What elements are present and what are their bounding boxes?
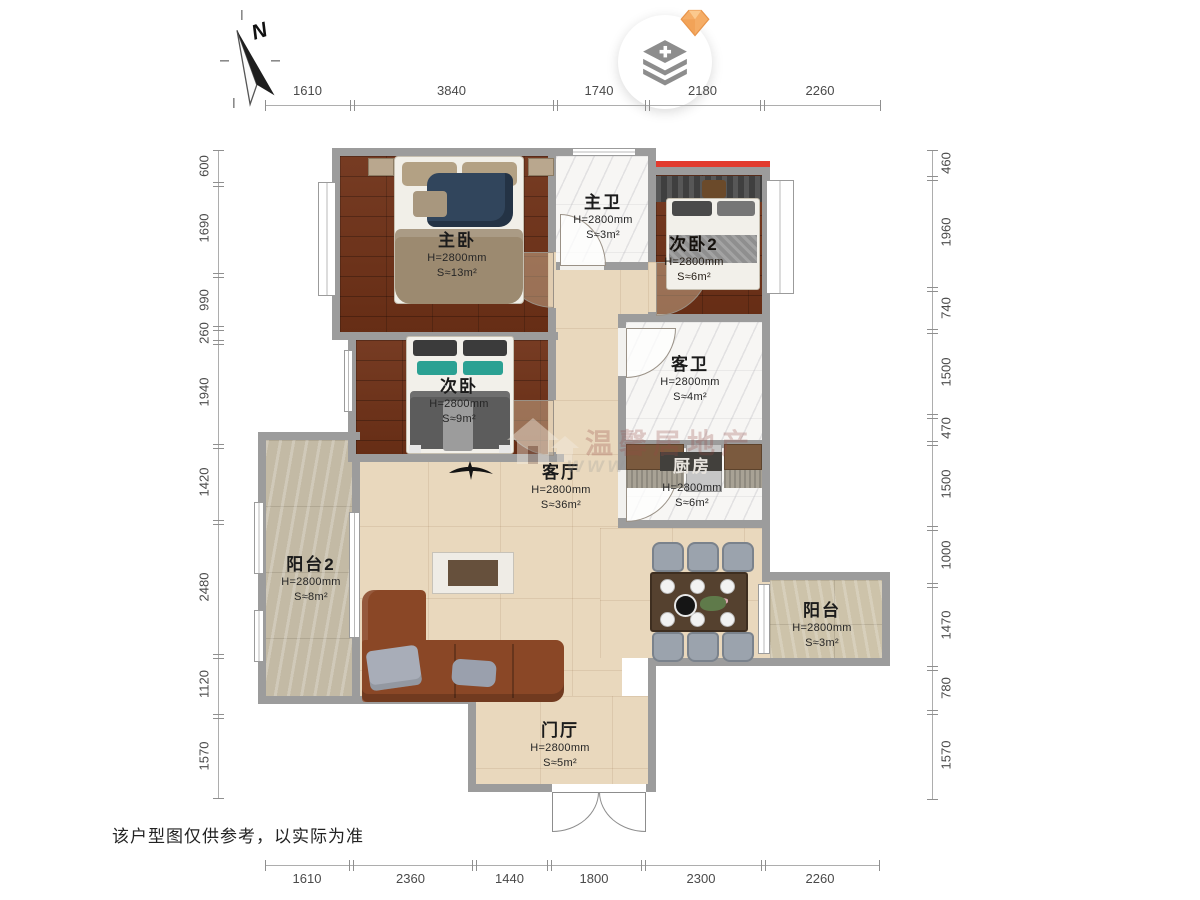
- compass-needle-icon: [220, 8, 280, 112]
- room-area: S≈5m²: [530, 756, 590, 771]
- dim-label: 2260: [806, 871, 835, 886]
- dim-label: 1740: [585, 83, 614, 98]
- room-height: H=2800mm: [281, 575, 341, 590]
- wall-segment: [468, 696, 476, 792]
- wall-segment: [762, 440, 770, 528]
- dim-label: 1960: [939, 217, 954, 246]
- dim-tick: [472, 860, 473, 871]
- dim-line: [265, 865, 879, 866]
- bay-window: [766, 180, 794, 294]
- dim-tick: [879, 860, 880, 871]
- dim-label: 1690: [197, 213, 212, 242]
- room-area: S≈3m²: [573, 228, 633, 243]
- dim-tick: [927, 583, 938, 584]
- room-label-balcony: 阳台 H=2800mm S≈3m²: [792, 596, 852, 650]
- dim-label: 740: [939, 297, 954, 319]
- dim-tick: [927, 666, 938, 667]
- door-opening: [648, 262, 656, 312]
- room-area: S≈13m²: [427, 266, 487, 281]
- room-area: S≈6m²: [664, 270, 724, 285]
- dining-table: [650, 572, 748, 632]
- wall-segment: [762, 314, 770, 448]
- dim-line: [265, 105, 880, 106]
- entry-threshold: [552, 784, 646, 792]
- room-name: 阳台: [792, 596, 852, 621]
- dim-tick: [927, 587, 938, 588]
- dim-tick: [927, 180, 938, 181]
- wall-segment: [258, 696, 360, 704]
- dining-chair: [687, 542, 719, 572]
- dim-tick: [353, 860, 354, 871]
- dim-tick: [927, 414, 938, 415]
- pillow: [413, 340, 457, 356]
- room-area: S≈3m²: [792, 636, 852, 651]
- dim-tick: [349, 860, 350, 871]
- balcony-door-window: [349, 512, 360, 638]
- window: [254, 610, 264, 662]
- dim-tick: [927, 445, 938, 446]
- coffee-table-top: [448, 560, 498, 586]
- room-label-master-bedroom: 主卧 H=2800mm S≈13m²: [427, 226, 487, 280]
- dim-label: 1440: [495, 871, 524, 886]
- dim-tick: [476, 860, 477, 871]
- dim-tick: [645, 100, 646, 111]
- window: [344, 350, 353, 412]
- bay-window: [318, 182, 336, 296]
- wall-segment: [548, 148, 556, 340]
- entry-door-right-leaf: [599, 792, 646, 832]
- nightstand: [368, 158, 394, 176]
- dim-label: 3840: [437, 83, 466, 98]
- sofa-pillow: [451, 658, 497, 687]
- room-area: S≈4m²: [660, 390, 720, 405]
- dim-tick: [354, 100, 355, 111]
- plate: [720, 612, 735, 627]
- dim-label: 1120: [197, 670, 212, 698]
- room-height: H=2800mm: [662, 481, 722, 496]
- floorplan-canvas: N: [0, 0, 1200, 900]
- dim-tick: [213, 654, 224, 655]
- room-name: 客卫: [660, 350, 720, 375]
- dining-chair: [722, 542, 754, 572]
- clothes-item: [702, 180, 726, 198]
- dim-tick: [927, 333, 938, 334]
- dim-label: 2360: [396, 871, 425, 886]
- room-name: 门厅: [530, 716, 590, 741]
- room-name: 次卧: [429, 372, 489, 397]
- coffee-table: [432, 552, 514, 594]
- flower-decor: [700, 596, 726, 611]
- ceiling-fan-icon: [448, 458, 494, 486]
- dim-tick: [765, 860, 766, 871]
- dim-tick: [927, 799, 938, 800]
- kitchen-counter: [724, 444, 762, 470]
- dim-label: 470: [939, 417, 954, 439]
- dim-tick: [927, 150, 938, 151]
- room-label-bedroom: 次卧 H=2800mm S≈9m²: [429, 372, 489, 426]
- dim-tick: [927, 714, 938, 715]
- balcony-door-window: [758, 584, 770, 654]
- dim-tick: [350, 100, 351, 111]
- room-label-bedroom2: 次卧2 H=2800mm S≈6m²: [664, 230, 724, 284]
- dim-label: 2480: [197, 573, 212, 602]
- center-bowl: [674, 594, 697, 617]
- pillow: [413, 191, 447, 217]
- dim-tick: [927, 526, 938, 527]
- room-name: 次卧2: [664, 230, 724, 255]
- dim-tick: [764, 100, 765, 111]
- dim-label: 990: [197, 289, 212, 311]
- dim-tick: [213, 344, 224, 345]
- pillow: [463, 340, 507, 356]
- pillow: [672, 201, 712, 216]
- disclaimer: 该户型图仅供参考，以实际为准: [112, 822, 364, 847]
- room-area: S≈9m²: [429, 412, 489, 427]
- dim-tick: [551, 860, 552, 871]
- plate: [660, 579, 675, 594]
- dim-tick: [641, 860, 642, 871]
- room-height: H=2800mm: [530, 741, 590, 756]
- dim-tick: [213, 150, 224, 151]
- dim-line: [932, 150, 933, 799]
- wall-segment: [882, 572, 890, 666]
- gem-icon: [680, 9, 710, 37]
- dining-chair: [652, 542, 684, 572]
- plate: [720, 579, 735, 594]
- room-label-foyer: 门厅 H=2800mm S≈5m²: [530, 716, 590, 770]
- dim-label: 1800: [580, 871, 609, 886]
- room-label-kitchen: 厨房 H=2800mm S≈6m²: [662, 452, 722, 510]
- pillow: [717, 201, 755, 216]
- dim-label: 1500: [939, 469, 954, 498]
- dim-label: 260: [197, 322, 212, 344]
- room-height: H=2800mm: [792, 621, 852, 636]
- dim-tick: [213, 330, 224, 331]
- entry-door-left-leaf: [552, 792, 599, 832]
- room-label-guest-bath: 客卫 H=2800mm S≈4m²: [660, 350, 720, 404]
- room-height: H=2800mm: [660, 375, 720, 390]
- dim-tick: [557, 100, 558, 111]
- nightstand: [528, 158, 554, 176]
- dim-tick: [927, 287, 938, 288]
- dim-tick: [927, 441, 938, 442]
- dining-chair: [687, 632, 719, 662]
- dim-tick: [927, 291, 938, 292]
- compass: N: [220, 6, 290, 114]
- dim-tick: [213, 186, 224, 187]
- dim-label: 2300: [687, 871, 716, 886]
- dim-tick: [553, 100, 554, 111]
- dim-tick: [213, 273, 224, 274]
- dim-tick: [927, 329, 938, 330]
- dim-tick: [880, 100, 881, 111]
- room-label-master-bath: 主卫 H=2800mm S≈3m²: [573, 188, 633, 242]
- wall-segment: [648, 658, 656, 792]
- dim-tick: [927, 530, 938, 531]
- room-name: 厨房: [662, 452, 722, 477]
- dim-label: 2260: [806, 83, 835, 98]
- room-name: 主卫: [573, 188, 633, 213]
- dim-tick: [927, 710, 938, 711]
- dim-label: 1940: [197, 378, 212, 407]
- room-label-balcony2: 阳台2 H=2800mm S≈8m²: [281, 550, 341, 604]
- dim-label: 1500: [939, 357, 954, 386]
- sofa-seam: [512, 644, 514, 698]
- dim-label: 1420: [197, 468, 212, 497]
- room-height: H=2800mm: [531, 483, 591, 498]
- dim-line: [218, 150, 219, 798]
- room-area: S≈8m²: [281, 590, 341, 605]
- plate: [660, 612, 675, 627]
- dim-tick: [213, 340, 224, 341]
- dim-label: 1570: [197, 742, 212, 771]
- dining-chair: [722, 632, 754, 662]
- plate: [690, 579, 705, 594]
- dim-label: 2180: [688, 83, 717, 98]
- door-opening: [618, 328, 626, 376]
- dim-label: 460: [939, 152, 954, 174]
- wall-segment: [618, 314, 770, 322]
- dim-tick: [213, 444, 224, 445]
- room-height: H=2800mm: [427, 251, 487, 266]
- dim-label: 1470: [939, 610, 954, 639]
- dim-label: 780: [939, 677, 954, 699]
- dim-tick: [265, 100, 266, 111]
- dim-tick: [927, 670, 938, 671]
- dim-label: 1000: [939, 540, 954, 569]
- dim-tick: [213, 520, 224, 521]
- window: [254, 502, 264, 574]
- dim-label: 1610: [293, 83, 322, 98]
- room-height: H=2800mm: [664, 255, 724, 270]
- sofa-throw: [365, 645, 422, 692]
- layers-plus-icon: [640, 37, 690, 87]
- room-name: 客厅: [531, 458, 591, 483]
- kitchen-mat: [724, 470, 762, 488]
- room-name: 阳台2: [281, 550, 341, 575]
- wall-segment: [618, 520, 770, 528]
- dim-label: 1570: [939, 740, 954, 769]
- room-label-living: 客厅 H=2800mm S≈36m²: [531, 458, 591, 512]
- bed-leg: [499, 445, 511, 453]
- room-area: S≈6m²: [662, 496, 722, 511]
- window: [572, 148, 636, 156]
- dim-tick: [645, 860, 646, 871]
- wall-segment: [762, 572, 890, 580]
- room-height: H=2800mm: [429, 397, 489, 412]
- dim-tick: [213, 448, 224, 449]
- dim-label: 600: [197, 155, 212, 177]
- wall-segment: [762, 658, 890, 666]
- dim-tick: [265, 860, 266, 871]
- dim-tick: [213, 798, 224, 799]
- dim-tick: [213, 277, 224, 278]
- dim-tick: [213, 182, 224, 183]
- room-name: 主卧: [427, 226, 487, 251]
- room-height: H=2800mm: [573, 213, 633, 228]
- dim-label: 1610: [293, 871, 322, 886]
- dim-tick: [927, 418, 938, 419]
- dim-tick: [547, 860, 548, 871]
- room-area: S≈36m²: [531, 498, 591, 513]
- dim-tick: [649, 100, 650, 111]
- dim-tick: [213, 718, 224, 719]
- dim-tick: [760, 100, 761, 111]
- door-opening: [618, 470, 626, 518]
- bed-leg: [409, 445, 421, 453]
- dim-tick: [213, 524, 224, 525]
- dim-tick: [927, 176, 938, 177]
- dim-tick: [213, 658, 224, 659]
- dim-tick: [213, 326, 224, 327]
- wall-segment: [648, 167, 770, 175]
- wall-segment: [258, 432, 360, 440]
- dim-tick: [213, 714, 224, 715]
- dim-tick: [761, 860, 762, 871]
- dining-chair: [652, 632, 684, 662]
